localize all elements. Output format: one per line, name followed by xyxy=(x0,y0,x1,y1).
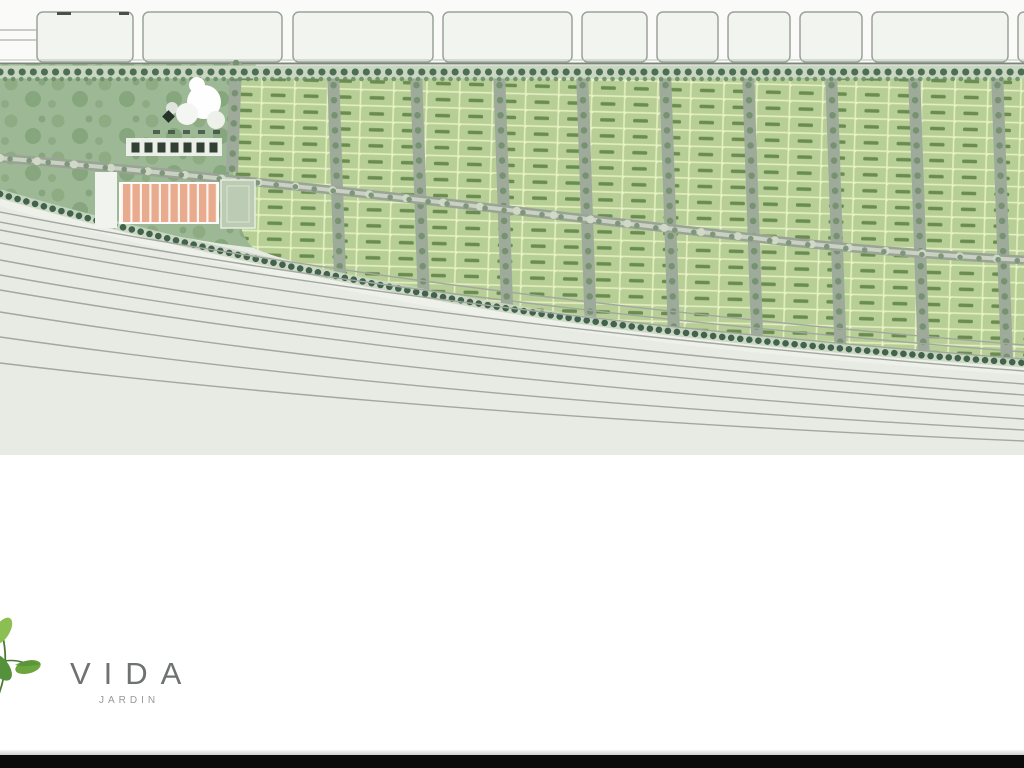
site-plan-image xyxy=(0,0,1024,455)
leaf-icon xyxy=(0,605,56,717)
brand-subtitle: JARDIN xyxy=(99,696,159,706)
survey-tick xyxy=(119,12,129,15)
parking-building xyxy=(120,183,218,223)
bottom-bar xyxy=(0,755,1024,768)
brochure-page: VIDA JARDIN xyxy=(0,0,1024,768)
survey-tick xyxy=(57,12,71,15)
brand-title: VIDA xyxy=(70,658,194,689)
master-plan-svg xyxy=(0,0,1024,455)
brand-section: VIDA JARDIN xyxy=(0,455,1024,750)
sports-court xyxy=(221,180,255,228)
entry-structure xyxy=(95,172,117,228)
top-tree-row xyxy=(0,72,1024,79)
